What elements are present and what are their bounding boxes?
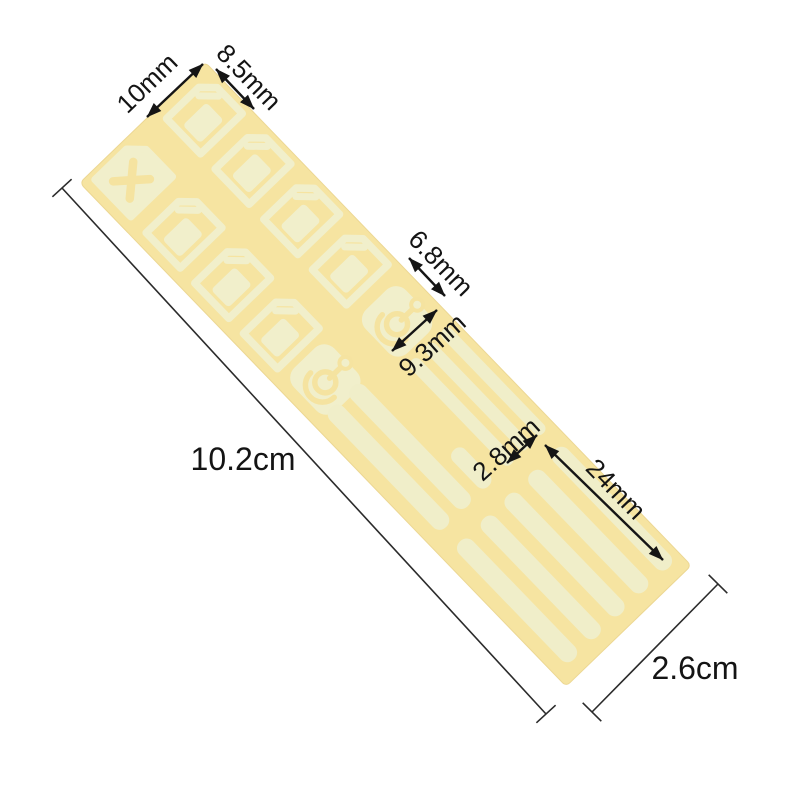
dimension-label-10-2cm: 10.2cm bbox=[191, 441, 296, 477]
dimension-diagram: 10mm 8.5mm 6.8mm 9.3mm 2.8mm 24mm 10.2cm bbox=[0, 0, 800, 800]
dimension-label-2-6cm: 2.6cm bbox=[651, 650, 738, 686]
sticker-sheet bbox=[80, 62, 691, 686]
product-image: 10mm 8.5mm 6.8mm 9.3mm 2.8mm 24mm 10.2cm bbox=[0, 0, 800, 800]
